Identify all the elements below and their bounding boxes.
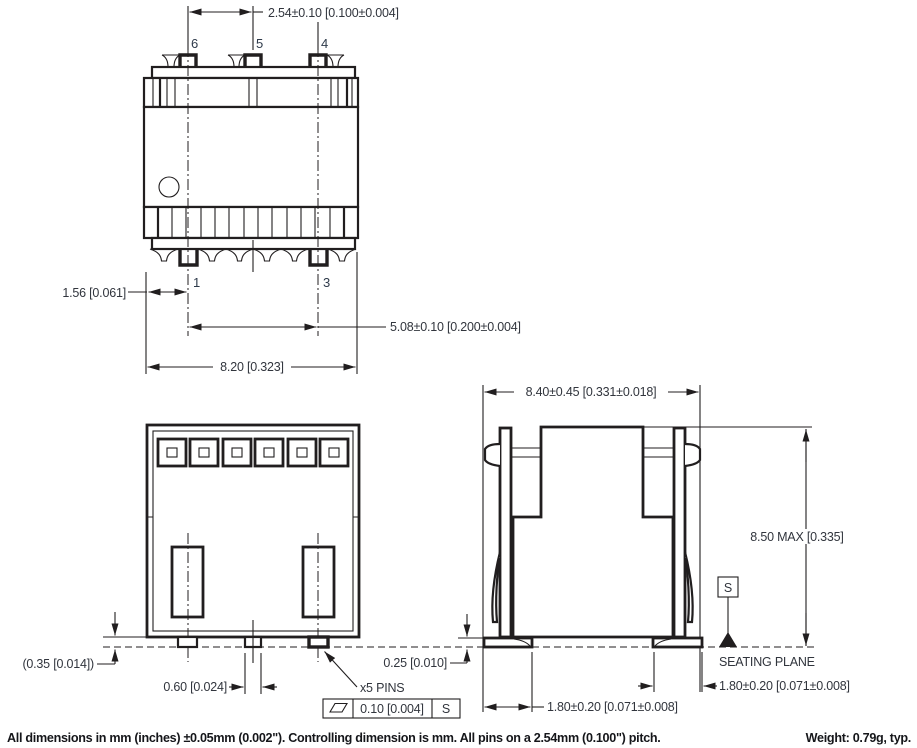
dim-overall-width: 8.40±0.45 [0.331±0.018] [526, 385, 657, 399]
flatness-tolerance: 0.10 [0.004] [360, 702, 424, 716]
dim-pin-pitch: 2.54±0.10 [0.100±0.004] [268, 6, 399, 20]
pin6-flare [162, 55, 180, 67]
pins-callout: x5 PINS [360, 681, 404, 695]
dim-max-height: 8.50 MAX [0.335] [750, 530, 843, 544]
technical-drawing: 2.54±0.10 [0.100±0.004] 6 5 4 1 3 1.56 [… [0, 0, 917, 748]
pin-3-label: 3 [323, 275, 330, 290]
mechanical-drawing-page: 2.54±0.10 [0.100±0.004] 6 5 4 1 3 1.56 [… [0, 0, 917, 748]
lead-flare [485, 444, 500, 466]
footer-weight: Weight: 0.79g, typ. [806, 731, 911, 745]
dim-standoff: (0.35 [0.014]) [22, 657, 94, 671]
dim-lead-thickness: 0.25 [0.010] [383, 656, 447, 670]
footer-note: All dimensions in mm (inches) ±0.05mm (0… [7, 731, 661, 745]
dim-pin-offset: 1.56 [0.061] [62, 286, 126, 300]
pin-4-label: 4 [321, 36, 328, 51]
scallop [150, 249, 178, 261]
dim-foot-left: 1.80±0.20 [0.071±0.008] [547, 700, 678, 714]
flatness-datum: S [442, 702, 450, 716]
seating-plane-label: SEATING PLANE [719, 655, 815, 669]
pin5-flare [228, 55, 245, 67]
dim-foot-right: 1.80±0.20 [0.071±0.008] [719, 679, 850, 693]
pin-6-label: 6 [191, 36, 198, 51]
scallop [226, 249, 253, 261]
bottom-view [97, 425, 460, 718]
dim-pin-span: 5.08±0.10 [0.200±0.004] [390, 320, 521, 334]
scallop [253, 249, 281, 261]
datum-label: S [724, 581, 732, 595]
dim-pin-width: 0.60 [0.024] [163, 680, 227, 694]
dim-body-width: 8.20 [0.323] [220, 360, 284, 374]
scallop [281, 249, 308, 261]
datum-triangle-icon [719, 632, 737, 647]
pin4-flare [327, 55, 344, 67]
pin-1-label: 1 [193, 275, 200, 290]
scallop [198, 249, 226, 261]
scallop [328, 249, 356, 261]
lead-flare [685, 444, 700, 466]
top-view [128, 6, 386, 374]
pin-5-label: 5 [256, 36, 263, 51]
